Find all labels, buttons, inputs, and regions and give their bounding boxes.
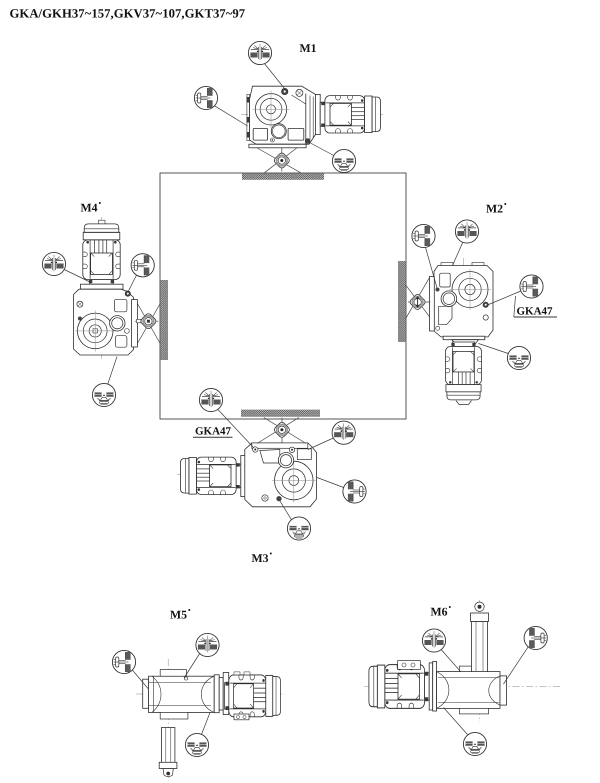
svg-text:M2: M2	[486, 202, 503, 216]
svg-text:M6: M6	[431, 605, 448, 619]
svg-text:M1: M1	[300, 41, 317, 55]
svg-text:M4: M4	[81, 201, 98, 215]
svg-text:M3: M3	[252, 551, 269, 565]
svg-text:GKA47: GKA47	[195, 426, 232, 438]
svg-text:M5: M5	[170, 608, 187, 622]
svg-text:GKA47: GKA47	[517, 306, 554, 318]
svg-text:GKA/GKH37~157,GKV37~107,GKT37~: GKA/GKH37~157,GKV37~107,GKT37~97	[10, 7, 246, 21]
